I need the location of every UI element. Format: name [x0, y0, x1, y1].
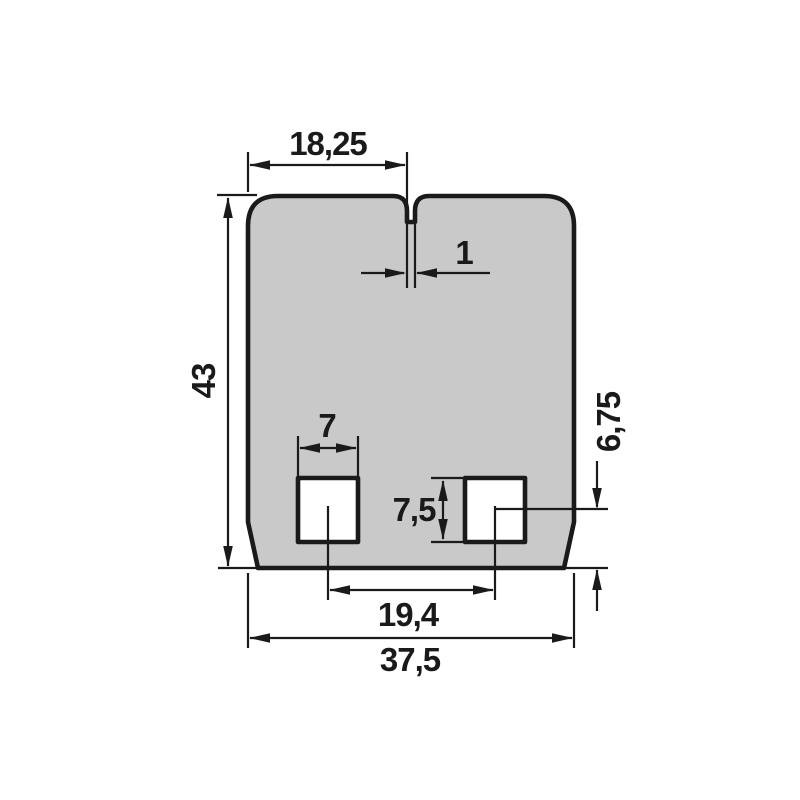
dim-cutout-height-label: 7,5 [393, 491, 437, 528]
dim-height: 43 [185, 197, 233, 567]
arrowhead-left-icon [249, 633, 270, 643]
dim-center-to-bottom-label: 6,75 [590, 391, 627, 452]
dim-center-to-bottom: 6,75 [590, 391, 627, 611]
arrowhead-right-icon [385, 160, 406, 170]
dim-notch-width-label: 1 [455, 234, 473, 271]
dim-top-width-label: 18,25 [289, 125, 367, 162]
arrowhead-up-icon [223, 197, 233, 218]
arrowhead-down-icon [592, 488, 602, 509]
arrowhead-right-icon [552, 633, 573, 643]
drawing-svg: 18,25 1 43 7 7,5 6,75 [0, 0, 800, 800]
dim-center-spacing-label: 19,4 [378, 596, 440, 633]
technical-drawing: 18,25 1 43 7 7,5 6,75 [0, 0, 800, 800]
arrowhead-right-icon [473, 585, 494, 595]
dim-total-width: 37,5 [249, 633, 573, 678]
arrowhead-down-icon [223, 546, 233, 567]
dim-height-label: 43 [185, 363, 222, 398]
arrowhead-left-icon [329, 585, 350, 595]
dim-top-width: 18,25 [249, 125, 406, 170]
dim-center-spacing: 19,4 [329, 585, 494, 633]
dim-cutout-width-label: 7 [318, 407, 335, 444]
arrowhead-left-icon [249, 160, 270, 170]
dim-total-width-label: 37,5 [380, 641, 441, 678]
arrowhead-up-icon [592, 569, 602, 590]
